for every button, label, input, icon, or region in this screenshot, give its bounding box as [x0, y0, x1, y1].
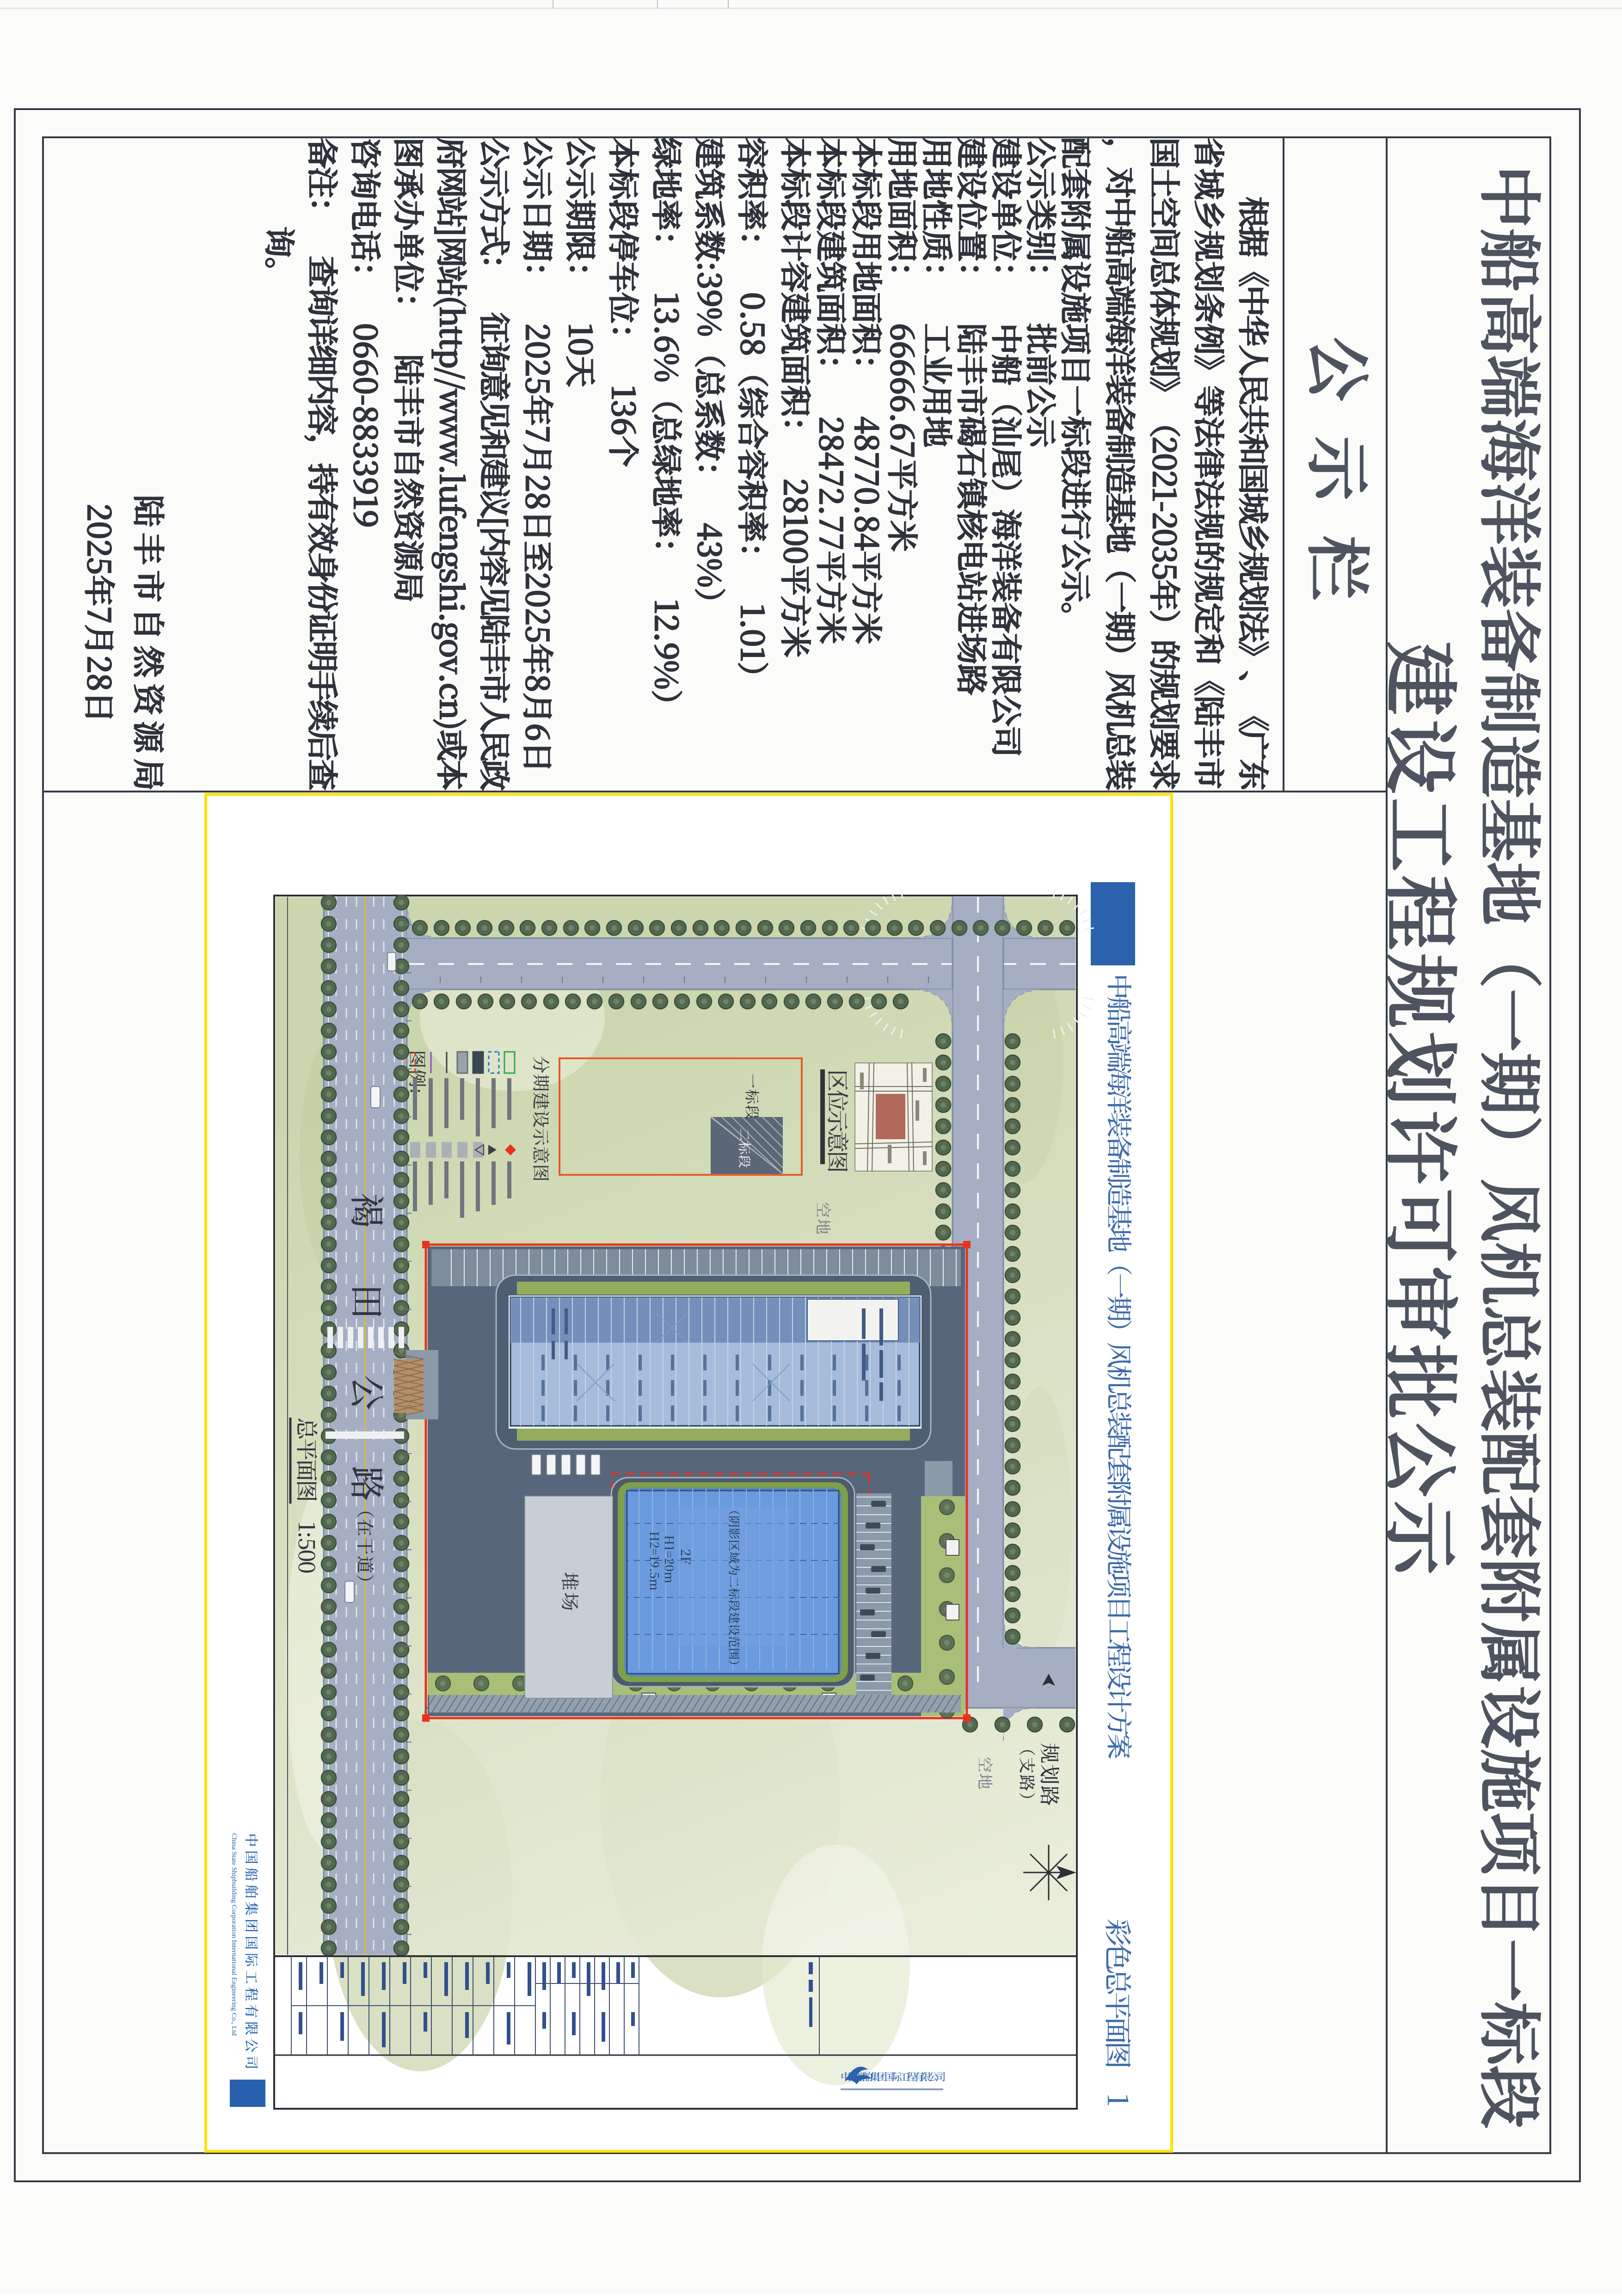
- svg-text:China State Shipbuilding Corpo: China State Shipbuilding Corporation Int…: [230, 1833, 238, 2036]
